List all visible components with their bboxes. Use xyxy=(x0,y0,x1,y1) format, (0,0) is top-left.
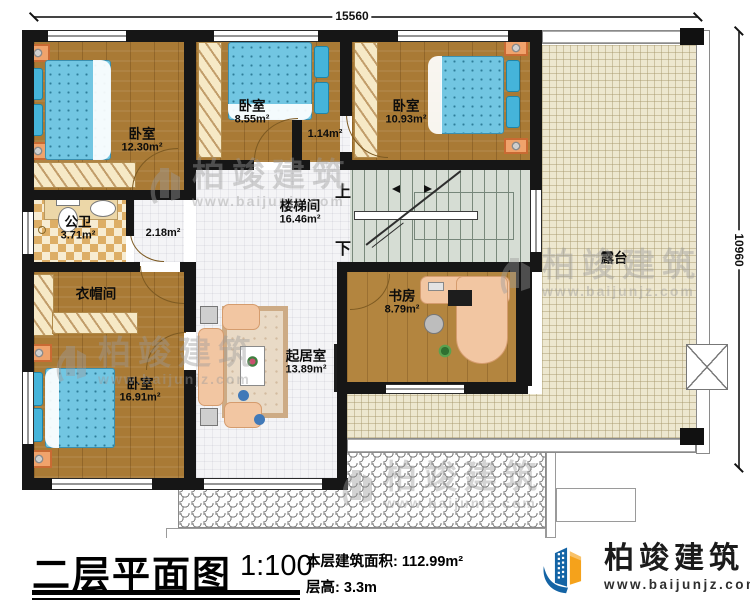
terrace-railing-top xyxy=(542,30,696,44)
room-label-cloakroom: 衣帽间 xyxy=(76,286,117,301)
wall xyxy=(296,160,310,170)
title-underline xyxy=(32,598,300,600)
bed-sheet xyxy=(45,368,59,448)
computer-monitor xyxy=(448,290,472,306)
wall xyxy=(126,196,134,236)
company-website: www.baijunjz.com xyxy=(604,577,750,592)
pillow xyxy=(314,46,329,78)
bed-sheet xyxy=(93,60,111,160)
side-table xyxy=(200,408,218,426)
window xyxy=(22,372,34,444)
window xyxy=(530,190,542,252)
room-area: 13.89m² xyxy=(286,363,327,375)
company-logo: 柏竣建筑 www.baijunjz.com xyxy=(540,540,750,596)
roof-outline xyxy=(546,452,556,538)
room-area: 16.91m² xyxy=(120,391,161,403)
window xyxy=(48,30,126,42)
corner-column xyxy=(680,428,704,445)
window xyxy=(386,384,464,394)
terrace-floor xyxy=(542,45,696,438)
nightstand xyxy=(504,40,528,56)
plan-scale: 1:100 xyxy=(240,550,313,583)
room-name: 起居室 xyxy=(286,348,327,363)
room-area: 12.30m² xyxy=(122,141,163,153)
room-label-hallway: 1.14m² xyxy=(308,128,343,140)
sofa xyxy=(198,328,224,406)
window xyxy=(398,30,508,42)
cross-marked-column xyxy=(686,344,728,390)
floor-drain xyxy=(38,226,46,234)
title-underline xyxy=(32,590,300,595)
side-table xyxy=(200,306,218,324)
room-area: 2.18m² xyxy=(146,227,181,239)
wardrobe xyxy=(198,42,222,158)
company-name: 柏竣建筑 xyxy=(604,544,750,574)
terrace-railing-bottom xyxy=(347,438,696,453)
room-area: 8.55m² xyxy=(235,113,270,125)
armchair xyxy=(222,304,260,330)
room-label-corridor: 2.18m² xyxy=(146,227,181,239)
wall xyxy=(184,272,196,332)
pillow xyxy=(506,96,520,128)
wall xyxy=(22,190,196,200)
floor-height-value: 3.3m xyxy=(344,580,377,596)
floor-height-info: 层高: 3.3m xyxy=(306,576,377,597)
wall xyxy=(337,262,347,490)
dimension-right-value: 10960 xyxy=(732,230,746,269)
floor-area-value: 112.99m² xyxy=(402,554,463,570)
stair-direction-arrow xyxy=(388,185,400,193)
room-name: 卧室 xyxy=(386,98,427,113)
window xyxy=(214,30,318,42)
room-name: 公卫 xyxy=(61,214,96,229)
room-label-bedroom-top-left: 卧室 12.30m² xyxy=(122,126,163,153)
room-label-bathroom: 公卫 3.71m² xyxy=(61,214,96,241)
roof-outline xyxy=(556,488,636,522)
window xyxy=(52,478,152,490)
floor-area-info: 本层建筑面积: 112.99m² xyxy=(306,550,463,571)
terrace-floor xyxy=(347,394,542,438)
table-flowers xyxy=(247,356,258,367)
company-logo-icon xyxy=(540,540,596,596)
plant xyxy=(438,344,452,358)
bed xyxy=(440,56,504,134)
cloakroom-rack xyxy=(52,312,138,334)
room-area: 8.79m² xyxy=(385,303,420,315)
window xyxy=(22,212,34,254)
wall xyxy=(184,30,196,200)
room-area: 1.14m² xyxy=(308,128,343,140)
room-label-bedroom-bottom-left: 卧室 16.91m² xyxy=(120,376,161,403)
wall xyxy=(196,160,254,170)
stairs-down-label: 下 xyxy=(335,235,351,259)
room-label-bedroom-top-mid: 卧室 8.55m² xyxy=(235,98,270,125)
title-block: 二层平面图 1:100 本层建筑面积: 112.99m² 层高: 3.3m 柏竣… xyxy=(0,538,750,610)
wall xyxy=(340,30,352,116)
pillow xyxy=(506,60,520,92)
room-label-terrace: 露台 xyxy=(601,250,628,265)
window xyxy=(204,478,322,490)
floor-area-label: 本层建筑面积: xyxy=(306,554,398,570)
dimension-top-value: 15560 xyxy=(332,9,371,23)
wall xyxy=(516,272,532,386)
terrace-railing-right xyxy=(696,30,710,454)
wall xyxy=(340,262,542,272)
keyboard xyxy=(428,282,444,291)
room-area: 3.71m² xyxy=(61,229,96,241)
person-figure xyxy=(254,414,265,425)
room-area: 10.93m² xyxy=(386,113,427,125)
wardrobe xyxy=(28,162,136,188)
pillow xyxy=(314,82,329,114)
room-area: 16.46m² xyxy=(280,213,321,225)
person-figure xyxy=(238,390,249,401)
room-label-study: 书房 8.79m² xyxy=(385,288,420,315)
room-name: 露台 xyxy=(601,250,628,265)
corner-column xyxy=(680,28,704,45)
floor-plan: 15560 10960 xyxy=(0,0,750,610)
stair-direction-arrow xyxy=(424,185,436,193)
room-name: 卧室 xyxy=(235,98,270,113)
room-name: 卧室 xyxy=(122,126,163,141)
wall xyxy=(180,262,196,272)
room-name: 卧室 xyxy=(120,376,161,391)
nightstand xyxy=(504,138,528,154)
stairs-up-label: 上 xyxy=(335,178,351,202)
wall xyxy=(184,370,196,490)
company-logo-text: 柏竣建筑 www.baijunjz.com xyxy=(604,544,750,592)
wall xyxy=(350,160,542,170)
room-name: 楼梯间 xyxy=(280,198,321,213)
wall xyxy=(22,262,140,272)
desk-chair xyxy=(424,314,444,334)
room-name: 书房 xyxy=(385,288,420,303)
stair-handrail xyxy=(354,211,478,220)
room-label-living-room: 起居室 13.89m² xyxy=(286,348,327,375)
floor-stair-corridor xyxy=(196,170,352,262)
room-name: 衣帽间 xyxy=(76,286,117,301)
bed-sheet xyxy=(428,56,442,134)
floor-height-label: 层高: xyxy=(306,580,340,596)
room-label-stairwell: 楼梯间 16.46m² xyxy=(280,198,321,225)
room-label-bedroom-top-right: 卧室 10.93m² xyxy=(386,98,427,125)
